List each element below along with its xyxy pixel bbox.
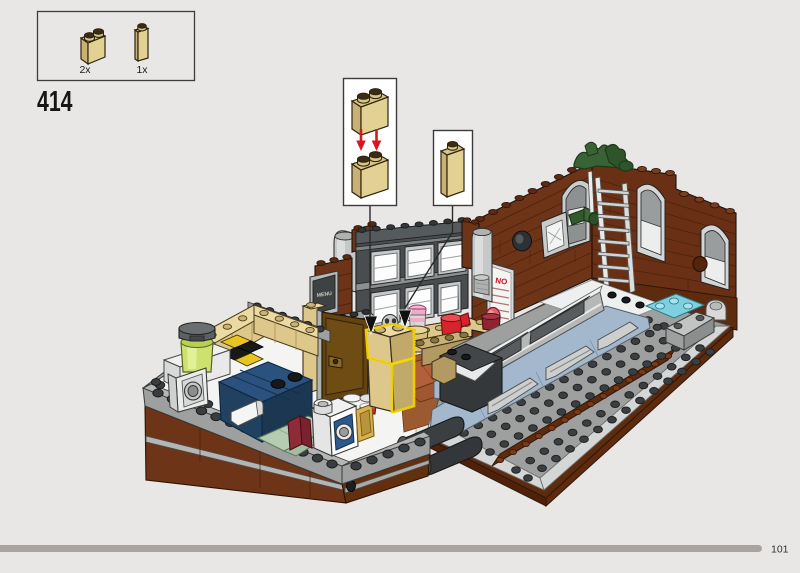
svg-text:414: 414	[37, 86, 73, 118]
svg-text:101: 101	[771, 544, 789, 556]
svg-text:NO: NO	[495, 276, 508, 287]
svg-text:1x: 1x	[136, 64, 148, 76]
svg-text:2x: 2x	[79, 64, 91, 76]
